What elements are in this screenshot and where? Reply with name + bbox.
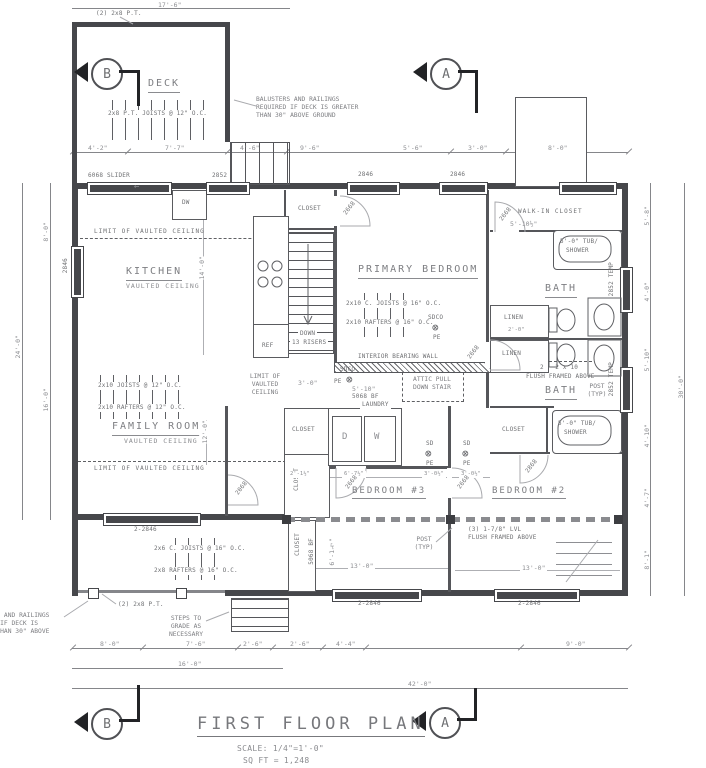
leader-line (436, 528, 452, 542)
room-label-bed2: BEDROOM #2 (492, 486, 566, 499)
dim-right-total: 30'-0" (677, 375, 685, 398)
dim-kitchen-depth: 14'-0" (196, 256, 208, 279)
slider-direction-arrow: ← (134, 182, 140, 193)
note-flush-2x10-l1: 2 - 2 x 10 (540, 364, 578, 372)
porch-post (176, 588, 187, 599)
window-label-family-south: 2-2846 (134, 526, 157, 534)
tub2-label-l1: 5'-0" TUB/ (558, 420, 596, 428)
dim-wic-width: 5'-10½" (510, 220, 537, 228)
sd-symbol-bed2-pe: PE (463, 460, 471, 468)
room-label-deck: DECK (148, 78, 180, 93)
dim-bottom1-1: 7'-6" (186, 640, 206, 648)
note-family-joists: 2x10 JOISTS @ 12" O.C. (96, 382, 184, 390)
note-primary-joists: 2x10 C. JOISTS @ 16" O.C. (344, 300, 443, 308)
dim-top-0: 4'-2" (88, 144, 108, 152)
dim-bed3-depth: 6'-1½" (328, 538, 336, 566)
note-limit-vaulted-kitchen: LIMIT OF VAULTED CEILING (94, 228, 205, 236)
room-sublabel-family: VAULTED CEILING (124, 437, 198, 445)
note-flush-lvl-l2: FLUSH FRAMED ABOVE (468, 534, 537, 542)
dim-left-total: 24'-0" (14, 335, 22, 358)
sink (594, 304, 614, 330)
post-square (282, 515, 291, 524)
sd-symbol-hall-pe: PE (334, 378, 342, 386)
note-deck-beam-top: (2) 2x8 P.T. (96, 10, 142, 18)
leader-line (64, 601, 88, 617)
dim-bed3-row-2: 3'-0½" (422, 471, 446, 478)
dim-bed3-width: 13'-0" (348, 562, 375, 570)
note-balusters-bottom: BALUSTERS AND RAILINGS REQUIRED IF DECK … (0, 612, 66, 645)
smoke-detector-icon: ⊗ (346, 374, 353, 385)
room-label-kitchen: KITCHEN (126, 266, 182, 281)
room-label-bed3: BEDROOM #3 (352, 486, 426, 499)
section-marker-a-bottom-label: A (441, 716, 449, 731)
note-flush-2x10-l2: FLUSH FRAMED ABOVE (526, 373, 595, 381)
refrigerator-label: REF (262, 342, 273, 350)
door-label-bed3-closet-bifold: 5068 BF (308, 538, 316, 565)
section-arrow-icon (74, 712, 88, 732)
stove-burner (272, 261, 282, 271)
room-sublabel-kitchen: VAULTED CEILING (126, 282, 200, 290)
room-label-laundry: LAUNDRY (360, 401, 391, 409)
window-label-bottom-b: 2-2846 (518, 600, 541, 608)
span-mark (566, 540, 598, 582)
tub1-label-l2: SHOWER (566, 247, 589, 255)
dim-bed3-row-0: 2'-1½" (288, 471, 312, 478)
section-marker-b-top-label: B (103, 67, 111, 82)
room-label-primary: PRIMARY BEDROOM (358, 264, 478, 279)
note-porch-joists: 2x6 C. JOISTS @ 16" O.C. (152, 545, 248, 553)
note-primary-rafters: 2x10 RAFTERS @ 16" O.C. (344, 319, 436, 327)
dim-top-2: 4'-6" (240, 144, 260, 152)
section-arrow-icon (74, 62, 88, 82)
washer-label: W (374, 432, 380, 443)
closet-label-bed3: CLOSET (294, 533, 302, 556)
room-label-bath2: BATH (545, 385, 577, 400)
dishwasher-label: DW (182, 199, 190, 207)
dim-top-6: 8'-0" (548, 144, 568, 152)
window-label-slider: 6068 SLIDER (88, 172, 130, 180)
dim-top-1: 7'-7" (165, 144, 185, 152)
leader-line (206, 612, 229, 621)
smoke-detector-icon: ⊗ (462, 448, 469, 459)
stairs-down-label: DOWN (298, 330, 317, 338)
stove-burner (272, 277, 282, 287)
toilet-bowl (557, 344, 575, 366)
dim-bed2-width: 13'-0" (520, 564, 547, 572)
closet-label-bed2: CLOSET (502, 426, 525, 434)
section-marker-line (474, 688, 477, 721)
toilet-tank (549, 308, 557, 332)
dim-left-0: 8'-0" (42, 222, 50, 242)
drawing-scale: SCALE: 1/4"=1'-0" (237, 744, 324, 754)
dim-bottom1-3: 2'-6" (290, 640, 310, 648)
note-porch-beam: (2) 2x8 P.T. (118, 601, 164, 609)
tub1-label-l1: 5'-0" TUB/ (560, 238, 598, 246)
sd-symbol-primary-pe: PE (433, 334, 441, 342)
closet-label-hall-a: CLOSET (292, 426, 315, 434)
section-marker-line (137, 685, 140, 722)
smoke-detector-icon: ⊗ (425, 448, 432, 459)
dim-right-2: 5'-10" (643, 348, 651, 371)
door-label-laundry-bifold: 5068 BF (350, 393, 381, 401)
note-porch-rafters: 2x8 RAFTERS @ 16" O.C. (152, 567, 240, 575)
dim-top-3: 9'-6" (300, 144, 320, 152)
note-limit-vaulted-family: LIMIT OF VAULTED CEILING (94, 465, 205, 473)
stairs-risers-label: 13 RISERS (290, 339, 328, 347)
section-marker-line (137, 70, 140, 106)
dim-right-1: 4'-0" (643, 282, 651, 302)
stove-burner (258, 277, 268, 287)
dim-right-0: 5'-8" (643, 206, 651, 226)
dim-top-4: 5'-6" (403, 144, 423, 152)
section-marker-b-bottom-label: B (103, 717, 111, 732)
dim-bottom1-4: 4'-4" (336, 640, 356, 648)
room-label-family: FAMILY ROOM (112, 421, 200, 436)
closet-label-stairtop: CLOSET (298, 205, 321, 213)
window-label-2846-a: 2846 (358, 171, 373, 179)
dim-right-5: 8'-1" (643, 550, 651, 570)
dim-bottom1-0: 8'-0" (100, 640, 120, 648)
leader-line (234, 100, 256, 106)
dim-hall: 3'-0" (296, 379, 320, 387)
window-label-temp-1: 2852 TEMP (608, 262, 616, 296)
note-steps-grade: STEPS TO GRADE AS NECESSARY (164, 615, 208, 640)
tub2-label-l2: SHOWER (564, 429, 587, 437)
note-post-typ-1: POST (TYP) (410, 536, 438, 552)
section-marker-a-bottom: A (429, 707, 461, 739)
section-marker-line (475, 70, 478, 113)
dim-right-4: 4'-7" (643, 488, 651, 508)
stove-burner (258, 261, 268, 271)
window-label-2852: 2852 (212, 172, 227, 180)
drawing-title: FIRST FLOOR PLAN (197, 714, 425, 737)
dim-bottom1-5: 9'-0" (566, 640, 586, 648)
room-label-bath1: BATH (545, 283, 577, 298)
note-bearing-wall: INTERIOR BEARING WALL (358, 353, 438, 361)
window-label-left-2846: 2846 (62, 258, 70, 273)
dim-laundry-width: 5'-10" (350, 385, 377, 393)
section-marker-b-top: B (91, 58, 123, 90)
first-floor-plan-drawing: 17'-6" 4'-2" 7'-7" 4'-6" 9'-6" 5'-6" 3'-… (0, 0, 706, 768)
leader-line (102, 594, 116, 604)
smoke-detector-icon: ⊗ (432, 322, 439, 333)
dim-family-depth: 12'-0" (199, 420, 211, 443)
note-family-rafters: 2x10 RAFTERS @ 12" O.C. (96, 404, 188, 412)
dim-bottom3: 42'-0" (408, 680, 431, 688)
window-label-bottom-a: 2-2846 (358, 600, 381, 608)
section-marker-b-bottom: B (91, 708, 123, 740)
room-label-wic: WALK-IN CLOSET (518, 208, 583, 216)
dim-bottom1-2: 2'-6" (243, 640, 263, 648)
section-arrow-icon (413, 62, 427, 82)
note-attic-stair: ATTIC PULL DOWN STAIR (404, 376, 460, 392)
dim-bottom2: 16'-0" (178, 660, 201, 668)
section-marker-a-top-label: A (442, 67, 450, 82)
window-label-2846-b: 2846 (450, 171, 465, 179)
dim-deck-width: 17'-6" (158, 1, 181, 9)
dryer-label: D (342, 432, 348, 443)
section-marker-a-top: A (430, 58, 462, 90)
note-flush-lvl-l1: (3) 1-7/8" LVL (468, 526, 521, 534)
dim-top-5: 3'-0" (468, 144, 488, 152)
post-square (446, 515, 455, 524)
dim-linen-depth: 2'-0" (508, 327, 525, 334)
porch-post (88, 588, 99, 599)
drawing-sqft: SQ FT = 1,248 (243, 756, 310, 766)
linen-label-2: LINEN (502, 350, 521, 358)
note-limit-vaulted-hall: LIMIT OF VAULTED CEILING (243, 373, 287, 398)
note-balusters-top: BALUSTERS AND RAILINGS REQUIRED IF DECK … (256, 96, 364, 121)
note-post-typ-2: POST (TYP) (584, 383, 610, 399)
toilet-bowl (557, 309, 575, 331)
sd-symbol-bed3-pe: PE (426, 460, 434, 468)
post-square (614, 515, 623, 524)
dim-left-1: 16'-0" (42, 388, 50, 411)
dim-right-3: 4'-10" (643, 424, 651, 447)
linen-label-1: LINEN (504, 314, 523, 322)
note-deck-joists: 2x8 P.T. JOISTS @ 12" O.C. (106, 110, 209, 118)
leader-line (120, 17, 133, 24)
